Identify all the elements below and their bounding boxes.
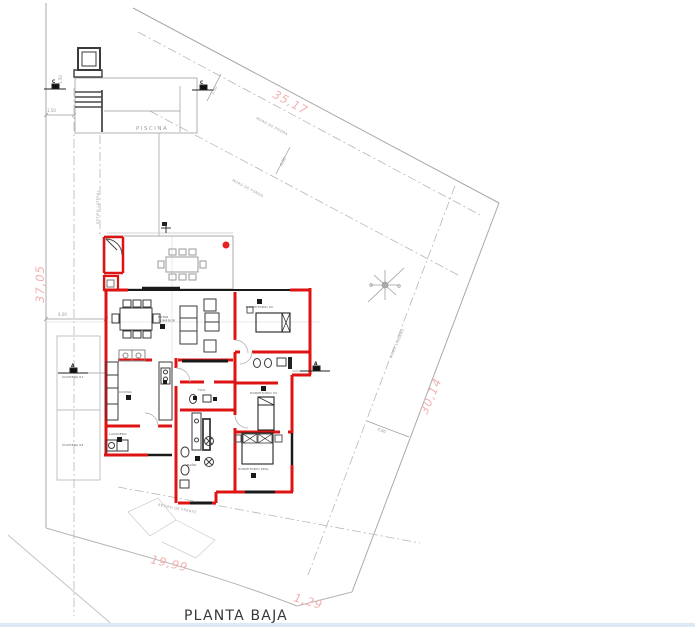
room-bedroom3: DORMITORIO 03 <box>250 391 277 395</box>
bottom-edge-strip <box>0 623 695 627</box>
dim-bottom-corner: 1,29 <box>292 590 324 612</box>
level-marker-icon <box>161 222 171 233</box>
room-bath: BAÑO <box>187 462 197 467</box>
pool-area <box>74 48 197 133</box>
dim-front-left: 4,00 <box>58 312 67 317</box>
pool-steps-icon <box>75 90 102 132</box>
setback-lines <box>74 32 482 616</box>
label-stamps <box>117 299 266 478</box>
dim-right-setback: 4,00 <box>377 426 388 434</box>
furniture <box>106 239 292 488</box>
note-party-wall: MURO LINDERO <box>389 328 405 359</box>
note-stone-wall: MURO DE PIEDRA <box>256 116 289 136</box>
dim-rear-wall: 6,00 <box>278 156 287 167</box>
tree-icon <box>368 268 404 302</box>
dim-stone-wall: 1,50 <box>209 85 218 96</box>
floor-plan-drawing: 35,17 37,05 30,14 19,99 1,29 1,50 4,00 1… <box>0 0 695 627</box>
room-labels: ESTAR COMEDOR COCINA LAVADERO TOIL BAÑO … <box>62 305 277 471</box>
room-bedroom2: DORMITORIO 02 <box>246 305 273 309</box>
room-garage2: COCHERA 02 <box>62 443 84 447</box>
section-a-left: A <box>71 363 75 369</box>
small-dimension-labels: 1,50 4,00 1,50 6,00 4,00 1,50 <box>47 75 387 435</box>
dim-pool-side: 1,50 <box>58 75 63 84</box>
big-dimension-labels: 35,17 37,05 30,14 19,99 1,29 <box>33 87 445 612</box>
section-labels: C C A A <box>52 79 318 369</box>
room-laundry: LAVADERO <box>109 432 127 436</box>
dim-side-setback: 1,50 <box>47 108 56 113</box>
section-a-right: A <box>314 361 318 367</box>
note-rear-wall: MURO DE FONDO <box>232 178 265 198</box>
room-living-2: COMEDOR <box>158 319 175 323</box>
section-markers <box>44 84 330 373</box>
dim-left: 37,05 <box>33 265 47 303</box>
room-kitchen: COCINA <box>119 390 133 394</box>
dim-right: 30,14 <box>417 376 445 416</box>
room-master: DORMITORIO PPAL <box>238 467 269 471</box>
note-front-setback: RETIRO DE FRENTE <box>158 503 197 514</box>
floor-plan-canvas: 35,17 37,05 30,14 19,99 1,29 1,50 4,00 1… <box>0 0 695 627</box>
page-title: PLANTA BAJA <box>184 608 288 624</box>
pool-label: PISCINA <box>136 126 168 132</box>
dim-bottom: 19,99 <box>149 552 189 574</box>
red-dot-marker <box>223 242 230 249</box>
room-garage1: COCHERA 01 <box>62 375 84 379</box>
spa-structure <box>74 48 102 77</box>
room-toilet: TOIL <box>197 388 206 392</box>
note-lateral-setback: RETIRO LATERAL <box>96 190 100 224</box>
garage-outlines <box>57 336 100 480</box>
outdoor-table <box>158 249 206 280</box>
